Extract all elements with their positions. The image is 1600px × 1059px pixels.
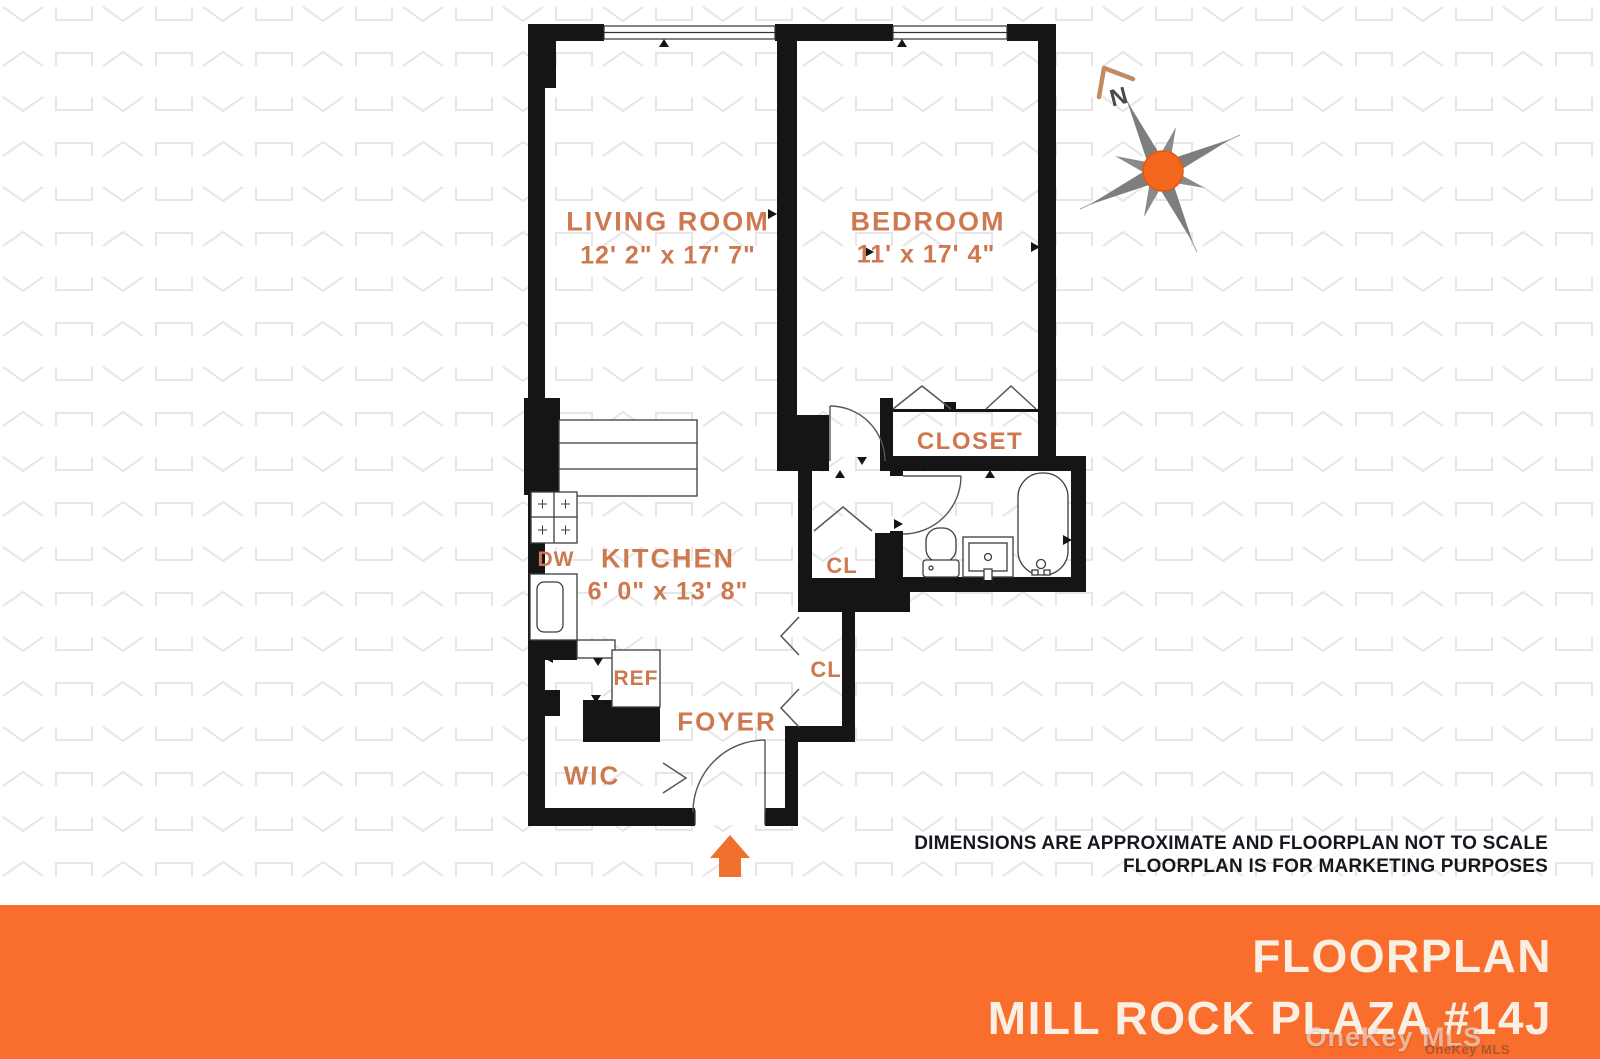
- bathroom-door-icon: [903, 476, 961, 534]
- bedroom-door-icon: [830, 406, 885, 461]
- bedroom-window-icon: [893, 26, 1007, 39]
- foyer-label: FOYER: [677, 707, 777, 738]
- foyer-closet-door-icon: [781, 689, 799, 727]
- kitchen-counter-icon: [559, 420, 697, 496]
- dishwasher-label: DW: [538, 548, 575, 572]
- bedroom-closet-door-icon: [893, 386, 951, 409]
- entrance-threshold: [695, 810, 765, 825]
- living-room-dimensions: 12' 2" x 17' 7": [580, 242, 756, 271]
- bedroom-dimensions: 11' x 17' 4": [857, 241, 996, 270]
- bedroom-closet-door-icon: [986, 386, 1036, 409]
- living-room-label: LIVING ROOM: [566, 207, 770, 238]
- bathtub-icon: [1018, 473, 1068, 575]
- foyer-closet-label: CL: [810, 657, 841, 683]
- wic-label: WIC: [564, 761, 621, 792]
- banner-title: FLOORPLAN: [988, 925, 1552, 987]
- entrance-door-icon: [693, 740, 765, 812]
- entrance-arrow-icon: [710, 835, 750, 877]
- kitchen-label: KITCHEN: [601, 544, 735, 575]
- hall-closet-label: CL: [826, 553, 857, 579]
- kitchen-sink-icon: [530, 574, 577, 640]
- living-room-window-icon: [604, 26, 775, 39]
- compass-north-label: N: [1107, 82, 1130, 112]
- counter-return: [577, 640, 615, 658]
- compass-rose-icon: N: [1080, 68, 1240, 252]
- hall-closet-door-icon: [814, 507, 872, 531]
- wic-door-icon: [663, 763, 686, 793]
- kitchen-dimensions: 6' 0" x 13' 8": [588, 578, 749, 607]
- disclaimer: DIMENSIONS ARE APPROXIMATE AND FLOORPLAN…: [914, 832, 1548, 878]
- toilet-icon: [923, 528, 959, 577]
- closet-label: CLOSET: [917, 428, 1023, 456]
- foyer-closet-door-icon: [781, 617, 799, 655]
- floorplan-drawing: N: [0, 0, 1600, 1059]
- bathroom-sink-icon: [963, 537, 1013, 582]
- onekey-mls-watermark-small: OneKey MLS: [1425, 1042, 1510, 1057]
- stove-icon: [531, 492, 577, 543]
- refrigerator-label: REF: [614, 667, 659, 691]
- disclaimer-line-1: DIMENSIONS ARE APPROXIMATE AND FLOORPLAN…: [914, 832, 1548, 855]
- disclaimer-line-2: FLOORPLAN IS FOR MARKETING PURPOSES: [914, 855, 1548, 878]
- bedroom-label: BEDROOM: [851, 207, 1006, 238]
- floorplan-page: N LIVING ROOM 12' 2" x 17' 7" BEDROOM 11…: [0, 0, 1600, 1059]
- title-banner: FLOORPLAN MILL ROCK PLAZA #14J OneKey ML…: [0, 905, 1600, 1059]
